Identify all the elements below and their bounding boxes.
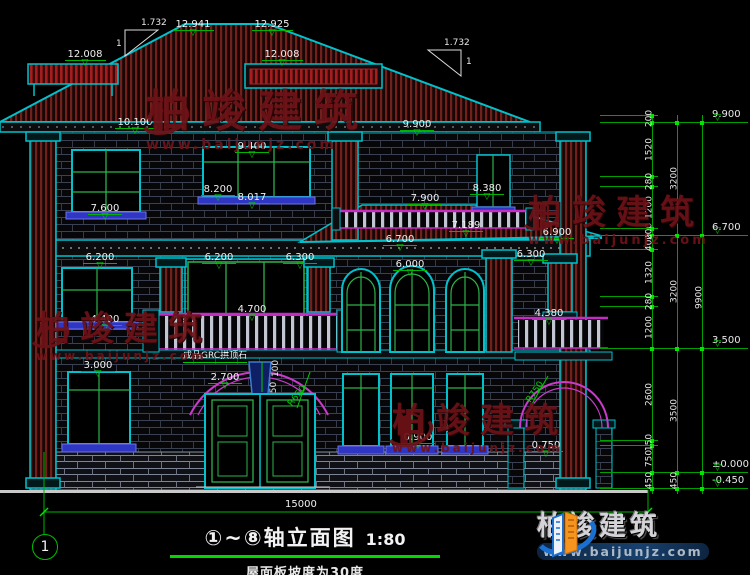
elevation-triangle-icon: ▽ xyxy=(386,443,450,450)
arched-windows-2f xyxy=(342,266,484,352)
elevation-triangle-icon: ▽ xyxy=(68,263,132,270)
elevation-marker: 7.900▽ xyxy=(393,186,457,211)
ground-line xyxy=(0,490,648,493)
dim-level-line xyxy=(600,235,748,236)
center-roof-parapet xyxy=(245,64,382,88)
elevation-marker: 2.700▽ xyxy=(193,365,257,390)
elevation-triangle-icon: ▽ xyxy=(73,214,137,221)
elevation-triangle-icon: ▽ xyxy=(187,263,251,270)
elevation-triangle-icon: ▽ xyxy=(73,325,137,332)
chain-dim-col1: 2600 xyxy=(646,381,655,409)
annotation-label: 1 xyxy=(466,58,472,67)
chain-dim-col1: 1320 xyxy=(646,259,655,287)
elevation-triangle-icon: ▽ xyxy=(103,128,167,135)
elevation-triangle-icon: ▽ xyxy=(161,30,225,37)
annotation-label: 1.732 xyxy=(141,19,167,28)
annotation-label: 1 xyxy=(116,40,122,49)
elevation-triangle-icon: ▽ xyxy=(220,203,284,210)
elevation-triangle-icon: ▽ xyxy=(378,270,442,277)
elevation-marker: 12.008▽ xyxy=(250,42,314,67)
annotation-label: 50 xyxy=(270,382,279,393)
chain-level-triangle-icon: ▽ xyxy=(714,227,721,236)
dim-tick xyxy=(700,121,704,125)
elevation-marker: 6.700▽ xyxy=(368,227,432,252)
logo-icon xyxy=(533,500,597,564)
elevation-marker: 6.200▽ xyxy=(187,245,251,270)
elevation-triangle-icon: ▽ xyxy=(53,60,117,67)
elevation-triangle-icon: ▽ xyxy=(250,60,314,67)
elevation-marker: 8.017▽ xyxy=(220,185,284,210)
elevation-marker: 0.900▽ xyxy=(386,425,450,450)
elevation-triangle-icon: ▽ xyxy=(240,30,304,37)
elevation-marker: 12.008▽ xyxy=(53,42,117,67)
chain-dim-col2: 3200 xyxy=(671,278,680,306)
annotation-label: 100 xyxy=(272,360,281,377)
elevation-triangle-icon: ▽ xyxy=(368,245,432,252)
dim-tick xyxy=(700,471,704,475)
chain-dim-col1: 450 xyxy=(646,467,655,495)
elevation-marker: 10.100▽ xyxy=(103,110,167,135)
elevation-triangle-icon: ▽ xyxy=(66,371,130,378)
elevation-marker: 0.750▽ xyxy=(514,433,578,458)
elevation-triangle-icon: ▽ xyxy=(455,194,519,201)
chain-level-triangle-icon: ▽ xyxy=(714,464,721,473)
chain-level-triangle-icon: ▽ xyxy=(714,114,721,123)
elevation-marker: 3.000▽ xyxy=(66,353,130,378)
keystone-note: 成品GRC拱顶石 xyxy=(183,348,247,363)
elevation-triangle-icon: ▽ xyxy=(193,383,257,390)
elevation-marker: 9.900▽ xyxy=(385,112,449,137)
chain-dim-col2: 3200 xyxy=(671,165,680,193)
elevation-marker: 7.600▽ xyxy=(73,196,137,221)
elevation-marker: 6.200▽ xyxy=(68,245,132,270)
elevation-marker: 4.700▽ xyxy=(220,297,284,322)
dim-level-line xyxy=(600,122,748,123)
elevation-marker: 7.189▽ xyxy=(434,213,498,238)
chain-dim-col1: 1520 xyxy=(646,136,655,164)
elevation-triangle-icon: ▽ xyxy=(268,263,332,270)
dim-tick xyxy=(700,487,704,491)
title-underline xyxy=(170,555,440,558)
title-block: ①~⑧轴立面图1:80 屋面板坡度为30度 xyxy=(160,522,450,575)
chain-dim-col1: 200 xyxy=(646,105,655,133)
dim-tick xyxy=(650,347,654,351)
overall-width-dim: 15000 xyxy=(285,499,317,510)
dim-tick xyxy=(675,234,679,238)
elevation-triangle-icon: ▽ xyxy=(514,451,578,458)
chain-dim-col3: 9900 xyxy=(696,284,705,312)
elevation-marker: 8.380▽ xyxy=(455,176,519,201)
elevation-triangle-icon: ▽ xyxy=(434,231,498,238)
dim-tick xyxy=(675,347,679,351)
chain-dim-col1: 280 xyxy=(646,288,655,316)
elevation-triangle-icon: ▽ xyxy=(393,204,457,211)
dim-tick xyxy=(675,121,679,125)
chain-dim-col1: 280 xyxy=(646,168,655,196)
axis-bubble-1: 1 xyxy=(32,534,58,560)
dim-tick xyxy=(700,234,704,238)
drawing-title: ①~⑧轴立面图1:80 xyxy=(160,522,450,552)
elevation-marker: 4.400▽ xyxy=(73,307,137,332)
cad-elevation-screenshot: ①~⑧轴立面图1:80 屋面板坡度为30度 1 15000 成品GRC拱顶石 柏… xyxy=(0,0,750,575)
chain-level-triangle-icon: ▽ xyxy=(714,480,721,489)
chain-dim-col1: 400 xyxy=(646,229,655,257)
drawing-scale: 1:80 xyxy=(366,530,406,549)
elevation-triangle-icon: ▽ xyxy=(517,319,581,326)
elevation-triangle-icon: ▽ xyxy=(499,260,563,267)
chain-level-triangle-icon: ▽ xyxy=(714,340,721,349)
drawing-subtitle: 屋面板坡度为30度 xyxy=(160,562,450,575)
elevation-marker: 4.380▽ xyxy=(517,301,581,326)
dim-level-line xyxy=(600,348,748,349)
elevation-marker: 6.000▽ xyxy=(378,252,442,277)
chain-dim-col1: 1200 xyxy=(646,314,655,342)
dim-tick xyxy=(700,347,704,351)
third-floor-balustrade xyxy=(332,208,534,230)
elevation-triangle-icon: ▽ xyxy=(220,315,284,322)
elevation-triangle-icon: ▽ xyxy=(385,130,449,137)
elevation-marker: 6.300▽ xyxy=(268,245,332,270)
chain-dim-col2: 450 xyxy=(671,467,680,495)
chain-dim-col2: 3500 xyxy=(671,397,680,425)
elevation-marker: 6.300▽ xyxy=(499,242,563,267)
elevation-marker: 12.941▽ xyxy=(161,12,225,37)
brand-logo: 柏竣建筑 www.baijunjz.com xyxy=(533,500,748,572)
elevation-triangle-icon: ▽ xyxy=(220,152,284,159)
annotation-label: 1.732 xyxy=(444,39,470,48)
elevation-marker: 9.400▽ xyxy=(220,134,284,159)
elevation-marker: 12.925▽ xyxy=(240,12,304,37)
